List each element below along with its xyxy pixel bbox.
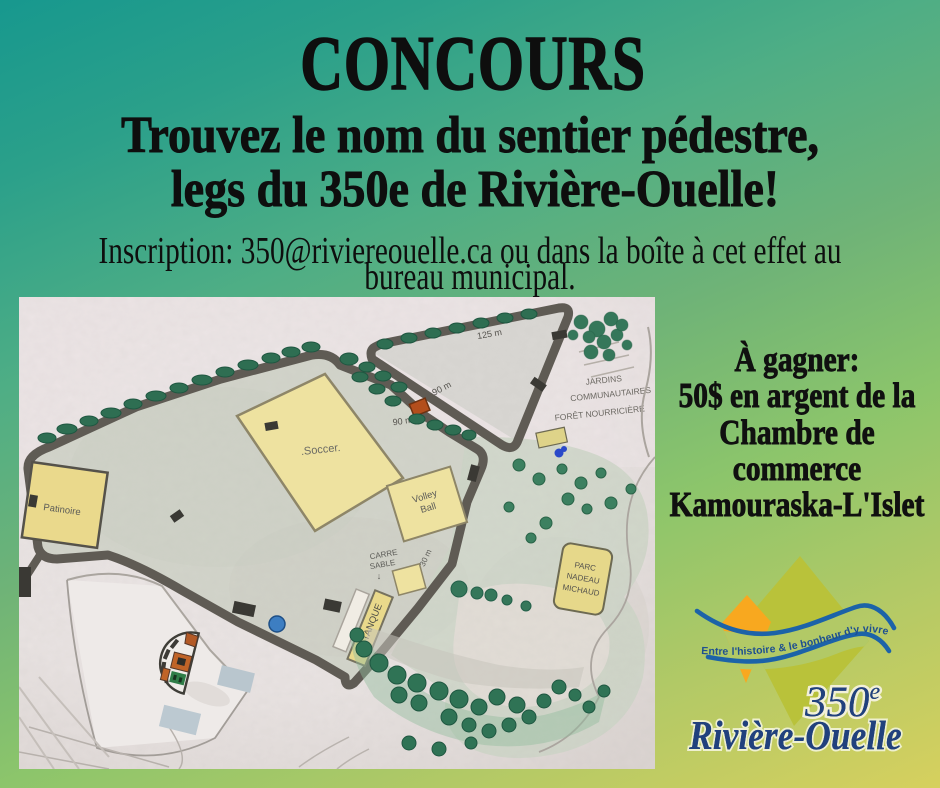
svg-text:↓: ↓	[377, 571, 382, 581]
svg-text:Rivière-Ouelle: Rivière-Ouelle	[688, 714, 902, 759]
